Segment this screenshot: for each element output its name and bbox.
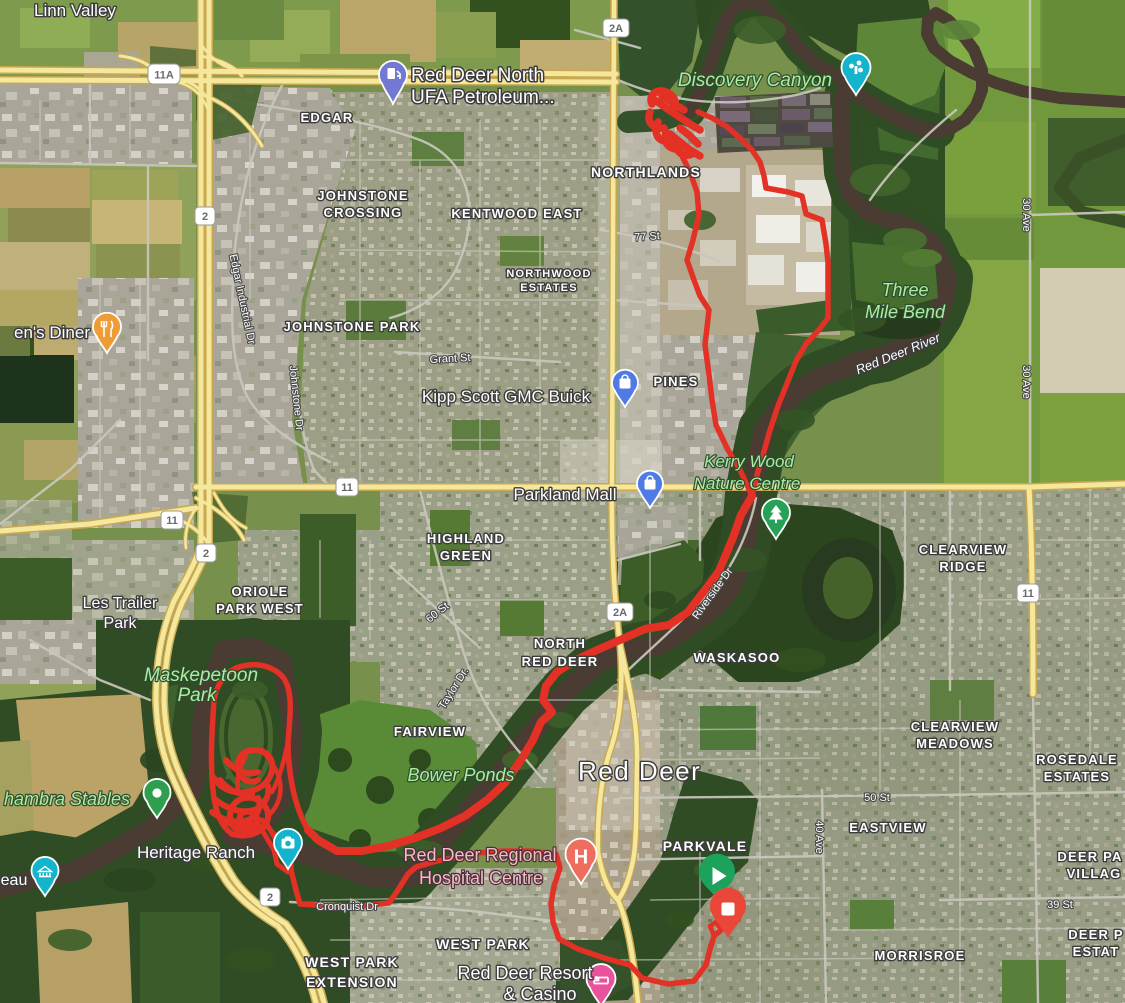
svg-text:DEER P: DEER P xyxy=(1068,927,1124,942)
svg-text:UFA Petroleum...: UFA Petroleum... xyxy=(411,87,555,108)
svg-text:CLEARVIEW: CLEARVIEW xyxy=(919,542,1008,557)
svg-text:2A: 2A xyxy=(613,607,627,619)
svg-text:H: H xyxy=(574,847,588,869)
svg-text:Red Deer: Red Deer xyxy=(578,756,701,786)
svg-text:eau: eau xyxy=(1,872,28,889)
svg-text:PARK WEST: PARK WEST xyxy=(216,601,304,616)
svg-text:CROSSING: CROSSING xyxy=(324,205,403,220)
svg-text:WEST PARK: WEST PARK xyxy=(305,954,399,970)
svg-text:Discovery Canyon: Discovery Canyon xyxy=(678,70,832,91)
svg-text:EXTENSION: EXTENSION xyxy=(306,974,398,990)
svg-text:Grant St: Grant St xyxy=(429,352,471,366)
svg-text:GREEN: GREEN xyxy=(440,548,492,563)
svg-text:Hospital Centre: Hospital Centre xyxy=(419,868,543,888)
svg-text:JOHNSTONE PARK: JOHNSTONE PARK xyxy=(284,319,421,334)
svg-text:Parkland Mall: Parkland Mall xyxy=(514,485,617,504)
svg-text:Kipp Scott GMC Buick: Kipp Scott GMC Buick xyxy=(422,387,591,406)
svg-text:MEADOWS: MEADOWS xyxy=(916,736,994,751)
svg-text:Red Deer North: Red Deer North xyxy=(411,65,544,86)
svg-text:WASKASOO: WASKASOO xyxy=(694,650,781,665)
svg-text:40 Ave: 40 Ave xyxy=(813,820,825,853)
svg-text:2A: 2A xyxy=(609,23,623,35)
svg-text:2: 2 xyxy=(267,892,273,904)
svg-text:50 St: 50 St xyxy=(864,792,890,804)
svg-text:30 Ave: 30 Ave xyxy=(1020,198,1032,231)
svg-text:Nature Centre: Nature Centre xyxy=(694,474,801,493)
svg-text:EDGAR: EDGAR xyxy=(301,110,354,125)
svg-text:RED DEER: RED DEER xyxy=(522,654,599,669)
svg-text:11A: 11A xyxy=(154,70,174,82)
svg-text:Linn Valley: Linn Valley xyxy=(34,1,116,20)
svg-text:Three: Three xyxy=(881,280,928,300)
svg-text:2: 2 xyxy=(202,211,208,223)
svg-text:WEST PARK: WEST PARK xyxy=(436,936,530,952)
svg-text:ESTATES: ESTATES xyxy=(1044,769,1110,784)
svg-text:2: 2 xyxy=(203,548,209,560)
svg-text:hambra Stables: hambra Stables xyxy=(4,789,130,809)
svg-text:& Casino: & Casino xyxy=(503,984,576,1003)
svg-text:Heritage Ranch: Heritage Ranch xyxy=(137,843,255,862)
svg-text:Maskepetoon: Maskepetoon xyxy=(144,665,258,686)
svg-text:VILLAG: VILLAG xyxy=(1067,866,1122,881)
svg-text:EASTVIEW: EASTVIEW xyxy=(849,820,927,835)
svg-text:JOHNSTONE: JOHNSTONE xyxy=(317,188,408,203)
svg-text:Kerry Wood: Kerry Wood xyxy=(704,452,794,471)
svg-text:Mile Bend: Mile Bend xyxy=(865,302,946,322)
svg-text:ROSEDALE: ROSEDALE xyxy=(1036,752,1118,767)
svg-text:39 St: 39 St xyxy=(1047,899,1073,911)
svg-text:CLEARVIEW: CLEARVIEW xyxy=(911,719,1000,734)
svg-text:ORIOLE: ORIOLE xyxy=(231,584,288,599)
svg-text:77 St: 77 St xyxy=(634,230,660,244)
svg-text:Red Deer Resort: Red Deer Resort xyxy=(457,963,592,983)
svg-text:NORTHLANDS: NORTHLANDS xyxy=(591,164,701,180)
svg-text:NORTH: NORTH xyxy=(534,636,586,651)
svg-text:Park: Park xyxy=(177,685,218,706)
svg-text:11: 11 xyxy=(341,482,353,494)
svg-text:PARKVALE: PARKVALE xyxy=(663,838,748,854)
svg-text:Red Deer Regional: Red Deer Regional xyxy=(403,845,556,865)
svg-text:Park: Park xyxy=(104,615,138,632)
svg-text:PINES: PINES xyxy=(653,374,698,389)
svg-text:Bower Ponds: Bower Ponds xyxy=(407,765,514,785)
svg-text:MORRISROE: MORRISROE xyxy=(875,948,966,963)
svg-text:en's Diner: en's Diner xyxy=(14,323,90,342)
svg-text:Cronquist Dr: Cronquist Dr xyxy=(316,901,378,913)
svg-text:Les Trailer: Les Trailer xyxy=(83,595,158,612)
svg-text:KENTWOOD EAST: KENTWOOD EAST xyxy=(451,206,582,221)
svg-text:RIDGE: RIDGE xyxy=(939,559,986,574)
svg-text:11: 11 xyxy=(166,515,178,527)
svg-text:DEER PA: DEER PA xyxy=(1057,849,1122,864)
svg-text:HIGHLAND: HIGHLAND xyxy=(427,531,505,546)
svg-text:FAIRVIEW: FAIRVIEW xyxy=(394,724,466,739)
svg-text:ESTATES: ESTATES xyxy=(520,282,578,294)
svg-text:ESTAT: ESTAT xyxy=(1073,944,1120,959)
svg-text:NORTHWOOD: NORTHWOOD xyxy=(506,268,591,280)
svg-text:30 Ave: 30 Ave xyxy=(1020,365,1032,398)
svg-text:11: 11 xyxy=(1022,588,1034,600)
